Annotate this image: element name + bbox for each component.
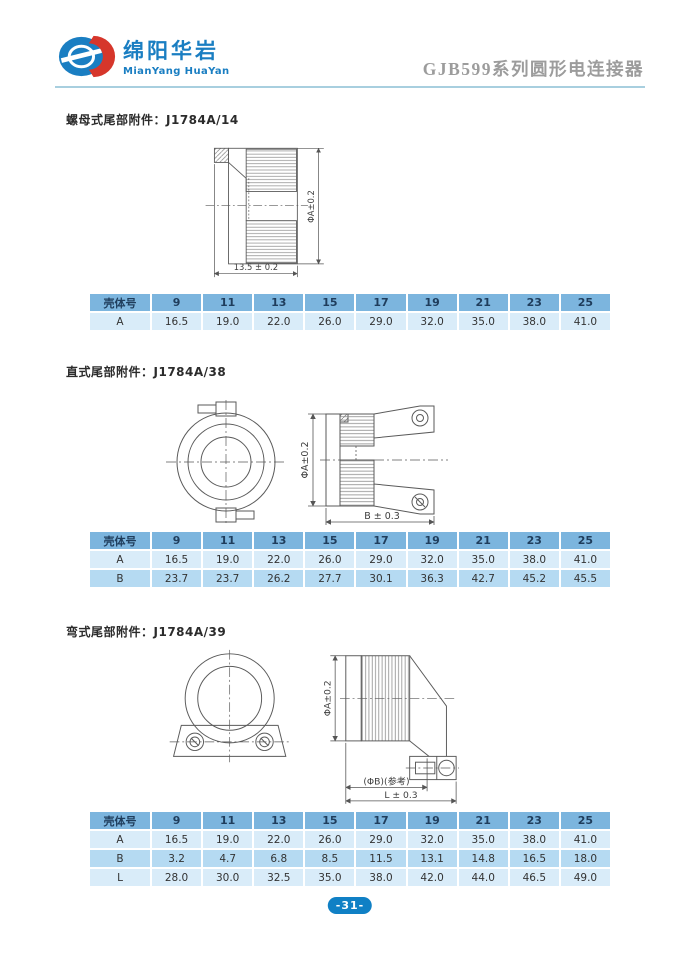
table-row: B3.24.76.88.511.513.114.816.518.0 bbox=[90, 850, 610, 867]
nut-body bbox=[206, 148, 308, 264]
table-cell: 22.0 bbox=[254, 831, 303, 848]
front-view-angled bbox=[170, 650, 290, 762]
technical-drawing-angled-tail: ΦA±0.2 (ΦB)(参考) L ± 0.3 bbox=[160, 648, 460, 808]
dimension-length-b: B ± 0.3 bbox=[326, 508, 434, 525]
table-header-cell: 23 bbox=[510, 294, 559, 311]
table-cell: 14.8 bbox=[459, 850, 508, 867]
section-title-nut-tail: 螺母式尾部附件：J1784A/14 bbox=[66, 111, 239, 128]
table-cell: 18.0 bbox=[561, 850, 610, 867]
table-header-cell: 23 bbox=[510, 812, 559, 829]
table-cell: 30.0 bbox=[203, 869, 252, 886]
table-row: L28.030.032.535.038.042.044.046.549.0 bbox=[90, 869, 610, 886]
table-cell: 32.5 bbox=[254, 869, 303, 886]
document-title: GJB599系列圆形电连接器 bbox=[423, 56, 644, 81]
table-cell: 35.0 bbox=[459, 551, 508, 568]
table-cell: 23.7 bbox=[152, 570, 201, 587]
table-header-cell: 17 bbox=[356, 532, 405, 549]
table-header-cell: 9 bbox=[152, 294, 201, 311]
table-cell: 16.5 bbox=[152, 551, 201, 568]
table-cell: 38.0 bbox=[510, 313, 559, 330]
company-name-chinese: 绵阳华岩 bbox=[123, 39, 230, 64]
table-header-cell: 9 bbox=[152, 812, 201, 829]
table-cell: 28.0 bbox=[152, 869, 201, 886]
table-header-cell: 21 bbox=[459, 812, 508, 829]
table-header-cell: 壳体号 bbox=[90, 532, 150, 549]
table-cell: 45.5 bbox=[561, 570, 610, 587]
table-cell: B bbox=[90, 570, 150, 587]
table-header-row: 壳体号91113151719212325 bbox=[90, 812, 610, 829]
table-header-cell: 25 bbox=[561, 294, 610, 311]
table-cell: 4.7 bbox=[203, 850, 252, 867]
table-cell: 11.5 bbox=[356, 850, 405, 867]
dimension-table-angled-tail: 壳体号91113151719212325A16.519.022.026.029.… bbox=[88, 810, 612, 888]
table-cell: A bbox=[90, 313, 150, 330]
spec-table: 壳体号91113151719212325A16.519.022.026.029.… bbox=[88, 810, 612, 888]
table-cell: 32.0 bbox=[408, 551, 457, 568]
table-cell: 29.0 bbox=[356, 551, 405, 568]
table-header-cell: 13 bbox=[254, 294, 303, 311]
dimension-table-straight-tail: 壳体号91113151719212325A16.519.022.026.029.… bbox=[88, 530, 612, 589]
table-header-row: 壳体号91113151719212325 bbox=[90, 294, 610, 311]
company-logo-text: 绵阳华岩 MianYang HuaYan bbox=[123, 33, 230, 77]
table-header-cell: 19 bbox=[408, 294, 457, 311]
table-cell: 22.0 bbox=[254, 313, 303, 330]
table-row: A16.519.022.026.029.032.035.038.041.0 bbox=[90, 831, 610, 848]
table-header-cell: 19 bbox=[408, 812, 457, 829]
page-number-badge: -31- bbox=[328, 897, 372, 914]
company-name-english: MianYang HuaYan bbox=[123, 66, 230, 77]
table-cell: 19.0 bbox=[203, 831, 252, 848]
table-cell: 16.5 bbox=[510, 850, 559, 867]
table-cell: 23.7 bbox=[203, 570, 252, 587]
table-cell: 42.7 bbox=[459, 570, 508, 587]
table-header-row: 壳体号91113151719212325 bbox=[90, 532, 610, 549]
table-cell: 32.0 bbox=[408, 831, 457, 848]
table-cell: 22.0 bbox=[254, 551, 303, 568]
company-logo: 绵阳华岩 MianYang HuaYan bbox=[58, 33, 230, 80]
table-cell: 26.0 bbox=[305, 831, 354, 848]
dimension-label-phi-b: (ΦB)(参考) bbox=[363, 775, 409, 787]
table-cell: 26.0 bbox=[305, 313, 354, 330]
table-header-cell: 17 bbox=[356, 812, 405, 829]
table-cell: 49.0 bbox=[561, 869, 610, 886]
table-cell: 36.3 bbox=[408, 570, 457, 587]
table-cell: 44.0 bbox=[459, 869, 508, 886]
table-cell: 41.0 bbox=[561, 831, 610, 848]
table-header-cell: 21 bbox=[459, 294, 508, 311]
table-header-cell: 9 bbox=[152, 532, 201, 549]
table-cell: 35.0 bbox=[459, 313, 508, 330]
table-cell: B bbox=[90, 850, 150, 867]
table-header-cell: 25 bbox=[561, 532, 610, 549]
front-view-clamp bbox=[166, 400, 286, 525]
technical-drawing-straight-tail: ΦA±0.2 B ± 0.3 bbox=[158, 398, 458, 528]
table-header-cell: 壳体号 bbox=[90, 294, 150, 311]
table-cell: 3.2 bbox=[152, 850, 201, 867]
table-header-cell: 11 bbox=[203, 812, 252, 829]
section-title-angled-tail: 弯式尾部附件：J1784A/39 bbox=[66, 623, 226, 640]
table-header-cell: 15 bbox=[305, 812, 354, 829]
table-cell: 16.5 bbox=[152, 831, 201, 848]
table-cell: 35.0 bbox=[305, 869, 354, 886]
spec-table: 壳体号91113151719212325A16.519.022.026.029.… bbox=[88, 292, 612, 332]
table-header-cell: 17 bbox=[356, 294, 405, 311]
table-header-cell: 11 bbox=[203, 532, 252, 549]
dimension-table-nut-tail: 壳体号91113151719212325A16.519.022.026.029.… bbox=[88, 292, 612, 332]
dimension-label-phi-a: ΦA±0.2 bbox=[306, 190, 316, 223]
table-cell: 29.0 bbox=[356, 313, 405, 330]
table-header-cell: 23 bbox=[510, 532, 559, 549]
table-cell: 41.0 bbox=[561, 313, 610, 330]
table-cell: 38.0 bbox=[356, 869, 405, 886]
table-cell: 30.1 bbox=[356, 570, 405, 587]
table-cell: 13.1 bbox=[408, 850, 457, 867]
dimension-diameter-a: ΦA±0.2 bbox=[297, 148, 323, 264]
table-header-cell: 25 bbox=[561, 812, 610, 829]
company-logo-icon bbox=[58, 33, 116, 80]
table-cell: L bbox=[90, 869, 150, 886]
table-cell: A bbox=[90, 551, 150, 568]
table-cell: 46.5 bbox=[510, 869, 559, 886]
table-cell: 8.5 bbox=[305, 850, 354, 867]
table-header-cell: 21 bbox=[459, 532, 508, 549]
side-view-elbow bbox=[340, 656, 459, 780]
table-cell: 32.0 bbox=[408, 313, 457, 330]
section-title-straight-tail: 直式尾部附件：J1784A/38 bbox=[66, 363, 226, 380]
table-header-cell: 13 bbox=[254, 812, 303, 829]
dimension-label-b: B ± 0.3 bbox=[364, 511, 400, 522]
technical-drawing-nut-side-section: ΦA±0.2 13.5 ± 0.2 bbox=[195, 143, 345, 284]
table-cell: 41.0 bbox=[561, 551, 610, 568]
spec-table: 壳体号91113151719212325A16.519.022.026.029.… bbox=[88, 530, 612, 589]
table-header-cell: 15 bbox=[305, 294, 354, 311]
table-cell: 38.0 bbox=[510, 551, 559, 568]
dimension-label-length: 13.5 ± 0.2 bbox=[234, 262, 278, 272]
table-cell: 45.2 bbox=[510, 570, 559, 587]
table-header-cell: 19 bbox=[408, 532, 457, 549]
table-cell: 6.8 bbox=[254, 850, 303, 867]
table-cell: 42.0 bbox=[408, 869, 457, 886]
table-cell: 19.0 bbox=[203, 551, 252, 568]
table-cell: 38.0 bbox=[510, 831, 559, 848]
dimension-label-l: L ± 0.3 bbox=[384, 790, 417, 801]
table-row: B23.723.726.227.730.136.342.745.245.5 bbox=[90, 570, 610, 587]
table-cell: 29.0 bbox=[356, 831, 405, 848]
table-header-cell: 壳体号 bbox=[90, 812, 150, 829]
table-header-cell: 13 bbox=[254, 532, 303, 549]
table-cell: 27.7 bbox=[305, 570, 354, 587]
side-view-straight-plug bbox=[320, 406, 448, 514]
table-row: A16.519.022.026.029.032.035.038.041.0 bbox=[90, 551, 610, 568]
table-cell: 26.0 bbox=[305, 551, 354, 568]
table-cell: A bbox=[90, 831, 150, 848]
document-page: 绵阳华岩 MianYang HuaYan GJB599系列圆形电连接器 螺母式尾… bbox=[0, 0, 700, 956]
table-header-cell: 11 bbox=[203, 294, 252, 311]
table-cell: 26.2 bbox=[254, 570, 303, 587]
table-cell: 19.0 bbox=[203, 313, 252, 330]
table-header-cell: 15 bbox=[305, 532, 354, 549]
table-cell: 16.5 bbox=[152, 313, 201, 330]
dimension-label-phi-a: ΦA±0.2 bbox=[300, 441, 311, 478]
table-row: A16.519.022.026.029.032.035.038.041.0 bbox=[90, 313, 610, 330]
dimension-label-phi-a: ΦA±0.2 bbox=[322, 680, 333, 716]
header-divider bbox=[55, 86, 645, 88]
table-cell: 35.0 bbox=[459, 831, 508, 848]
